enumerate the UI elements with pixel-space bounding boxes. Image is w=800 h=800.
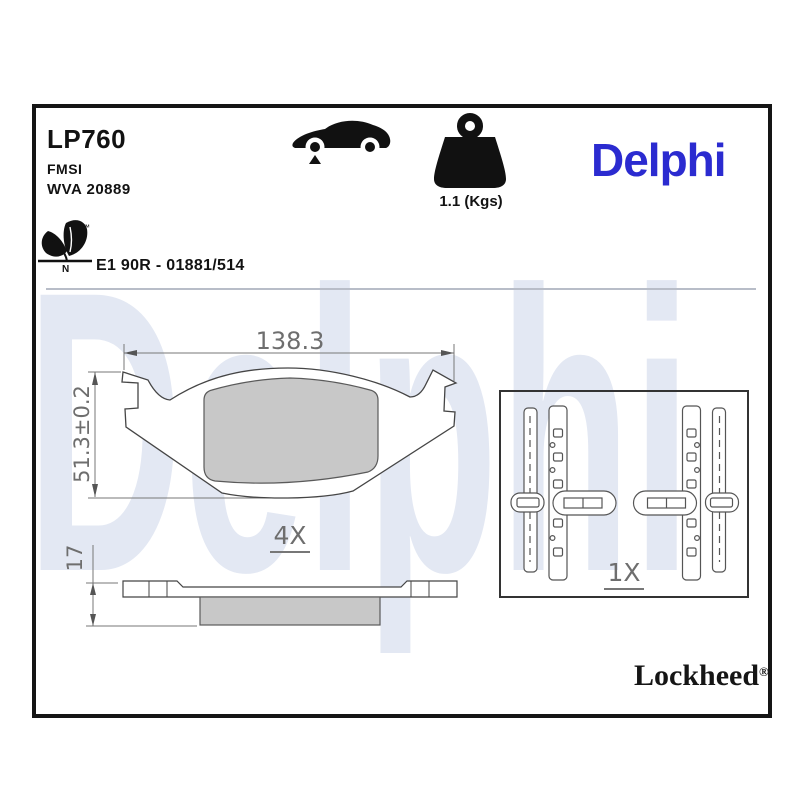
header-divider (46, 288, 756, 290)
homologation-number: E1 90R - 01881/514 (96, 257, 245, 275)
weight-ring (461, 117, 479, 135)
weight-value: 1.1 (Kgs) (424, 193, 518, 210)
pad-thickness-dimension: 17 (63, 536, 87, 580)
brand-logo: Delphi (591, 137, 726, 183)
rear-wheel-hub (365, 142, 375, 152)
pad-width-dimension: 138.3 (247, 327, 333, 355)
kit-left-group (511, 406, 616, 580)
weight-body (434, 137, 506, 188)
pad-quantity-label: 4X (268, 521, 312, 553)
footer-brand-logo: Lockheed® (634, 659, 769, 693)
eco-leaf-icon: N ™ (36, 216, 98, 278)
backing-plate-side (123, 581, 457, 597)
trademark-symbol: ™ (82, 223, 90, 232)
part-number: LP760 (47, 124, 126, 155)
wva-number: WVA 20889 (47, 181, 131, 198)
kit-right-group (634, 406, 739, 580)
front-wheel-hub (310, 142, 320, 152)
weight-icon (431, 111, 509, 191)
pad-height-dimension: 51.3±0.2 (70, 382, 94, 486)
front-axle-arrow-icon (309, 155, 321, 164)
registered-symbol: ® (759, 664, 769, 679)
kit-quantity-value: 1X (604, 558, 643, 590)
friction-material-side (200, 597, 380, 625)
pad-quantity-value: 4X (270, 521, 309, 553)
kit-quantity-label: 1X (604, 558, 644, 590)
car-profile-icon (289, 117, 393, 165)
eco-letter: N (62, 264, 69, 275)
fmsi-label: FMSI (47, 161, 82, 177)
footer-brand-text: Lockheed (634, 659, 759, 692)
friction-material (204, 378, 378, 483)
